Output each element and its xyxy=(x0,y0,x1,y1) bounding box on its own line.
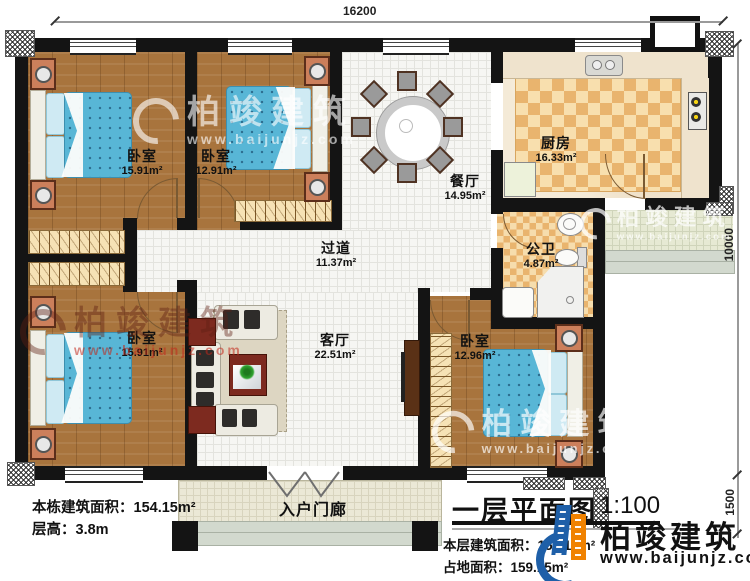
watermark-logo-icon xyxy=(11,300,76,365)
floor-plan-sheet: 卧室 15.91m² 卧室 12.91m² 餐厅 14.95m² 厨房 16.3… xyxy=(0,0,750,581)
watermark-text: 柏竣建筑 www.baijunjz.com xyxy=(187,95,356,147)
watermark-name: 柏竣建筑 xyxy=(617,206,732,228)
room-area: 4.87m² xyxy=(524,258,559,270)
closet xyxy=(234,200,332,222)
wall xyxy=(491,317,605,329)
kitchen-sink xyxy=(585,55,623,76)
stove-burner xyxy=(691,112,701,122)
room-name: 餐厅 xyxy=(445,174,486,190)
terrace-step xyxy=(605,261,735,274)
room-area: 15.91m² xyxy=(122,165,163,177)
bed-headboard xyxy=(30,90,46,180)
window xyxy=(383,38,449,55)
wall xyxy=(123,218,137,292)
room-label-corridor: 过道 11.37m² xyxy=(316,241,356,269)
dimension-line-right xyxy=(737,44,739,538)
toilet xyxy=(555,249,579,266)
door-leaf xyxy=(176,178,178,218)
sofa-cushion xyxy=(222,409,237,427)
nightstand xyxy=(555,324,583,352)
dining-chair xyxy=(443,117,463,137)
watermark: 柏竣建筑 www.baijunjz.com xyxy=(432,408,637,456)
porch-column xyxy=(412,521,438,551)
watermark-logo-icon xyxy=(423,402,483,462)
room-label-kitchen: 厨房 16.33m² xyxy=(536,136,577,164)
room-area: 11.37m² xyxy=(316,257,356,269)
closet xyxy=(28,262,125,286)
watermark-name: 柏竣建筑 xyxy=(482,408,637,438)
room-area: 16.33m² xyxy=(536,152,577,164)
watermark: 柏竣建筑 www.baijunjz.com xyxy=(580,206,732,241)
room-name: 厨房 xyxy=(536,136,577,152)
sofa-cushion xyxy=(242,409,257,427)
column-hatch xyxy=(705,31,734,57)
room-label-bedroom-tm: 卧室 12.91m² xyxy=(196,149,237,177)
column-hatch xyxy=(5,30,35,57)
room-label-bedroom-br: 卧室 12.96m² xyxy=(455,334,496,362)
nightstand xyxy=(304,56,330,86)
watermark-url: www.baijunjz.com xyxy=(74,342,243,358)
porch-step xyxy=(190,532,442,546)
watermark-text: 柏竣建筑 www.baijunjz.com xyxy=(482,408,637,456)
brand-logo-icon xyxy=(538,505,598,577)
kitchen-sink-bowl xyxy=(605,60,615,70)
watermark-logo-icon xyxy=(574,202,618,246)
dimension-line-top xyxy=(55,21,723,23)
room-label-bedroom-tl: 卧室 15.91m² xyxy=(122,149,163,177)
window xyxy=(228,38,292,55)
door-leaf xyxy=(198,178,200,218)
room-name: 客厅 xyxy=(315,333,356,349)
kitchen-sink-bowl xyxy=(592,60,602,70)
wall xyxy=(491,150,503,214)
dining-chair xyxy=(397,163,417,183)
bathroom-sink-bowl xyxy=(563,218,576,230)
room-name: 入户门廊 xyxy=(279,502,347,520)
room-name: 卧室 xyxy=(122,149,163,165)
nightstand xyxy=(304,172,330,202)
watermark-name: 柏竣建筑 xyxy=(187,95,356,128)
room-name: 卧室 xyxy=(455,334,496,350)
dining-table-center xyxy=(399,119,413,133)
bed-pillow xyxy=(46,93,65,135)
watermark-logo-icon xyxy=(124,89,189,154)
room-name: 过道 xyxy=(316,241,356,257)
room-area: 22.51m² xyxy=(315,349,356,361)
room-label-bathroom: 公卫 4.87m² xyxy=(524,242,559,270)
plant xyxy=(239,364,255,380)
kitchen-checker-floor xyxy=(515,78,681,192)
tv-stand xyxy=(404,340,420,416)
column-hatch xyxy=(7,462,35,486)
door-leaf xyxy=(643,154,645,198)
watermark: 柏竣建筑 www.baijunjz.com xyxy=(20,306,243,358)
watermark: 柏竣建筑 www.baijunjz.com xyxy=(133,95,356,147)
watermark-url: www.baijunjz.com xyxy=(187,131,356,147)
watermark-text: 柏竣建筑 www.baijunjz.com xyxy=(617,206,732,241)
dining-chair xyxy=(397,71,417,91)
building-area-text: 本栋建筑面积：154.15m² xyxy=(32,496,196,517)
room-label-porch: 入户门廊 xyxy=(279,502,347,520)
fridge xyxy=(504,162,536,197)
room-name: 公卫 xyxy=(524,242,559,258)
wall xyxy=(177,280,197,292)
room-label-dining: 餐厅 14.95m² xyxy=(445,174,486,202)
floor-height-text: 层高：3.8m xyxy=(32,518,109,539)
entry-double-door-icon xyxy=(265,470,345,500)
wall xyxy=(177,218,197,230)
room-label-living: 客厅 22.51m² xyxy=(315,333,356,361)
nightstand xyxy=(30,428,56,460)
bed-pillow xyxy=(46,136,65,178)
side-table xyxy=(188,406,216,434)
stove-burner xyxy=(691,97,701,107)
sofa-cushion xyxy=(196,392,214,406)
window xyxy=(70,38,136,55)
room-name: 卧室 xyxy=(196,149,237,165)
room-area: 14.95m² xyxy=(445,190,486,202)
watermark-url: www.baijunjz.com xyxy=(617,230,732,241)
wall xyxy=(708,38,722,210)
bed-pillow xyxy=(46,380,65,424)
shower-drain xyxy=(566,296,574,304)
porch-column xyxy=(172,521,198,551)
window xyxy=(65,466,143,483)
nightstand xyxy=(30,180,56,210)
washing-machine xyxy=(502,287,534,318)
wall xyxy=(491,52,503,83)
sofa-cushion xyxy=(244,310,260,329)
brand-url: www.baijunjz.com xyxy=(600,549,750,568)
closet xyxy=(28,230,125,254)
watermark-text: 柏竣建筑 www.baijunjz.com xyxy=(74,306,243,358)
dimension-top-value: 16200 xyxy=(340,4,379,18)
sofa-cushion xyxy=(196,372,214,388)
watermark-url: www.baijunjz.com xyxy=(482,441,637,456)
room-area: 12.91m² xyxy=(196,165,237,177)
nightstand xyxy=(30,58,56,90)
tv-icon xyxy=(401,352,405,402)
watermark-name: 柏竣建筑 xyxy=(74,306,243,339)
brand-logo-swoosh xyxy=(526,521,604,581)
room-area: 12.96m² xyxy=(455,350,496,362)
